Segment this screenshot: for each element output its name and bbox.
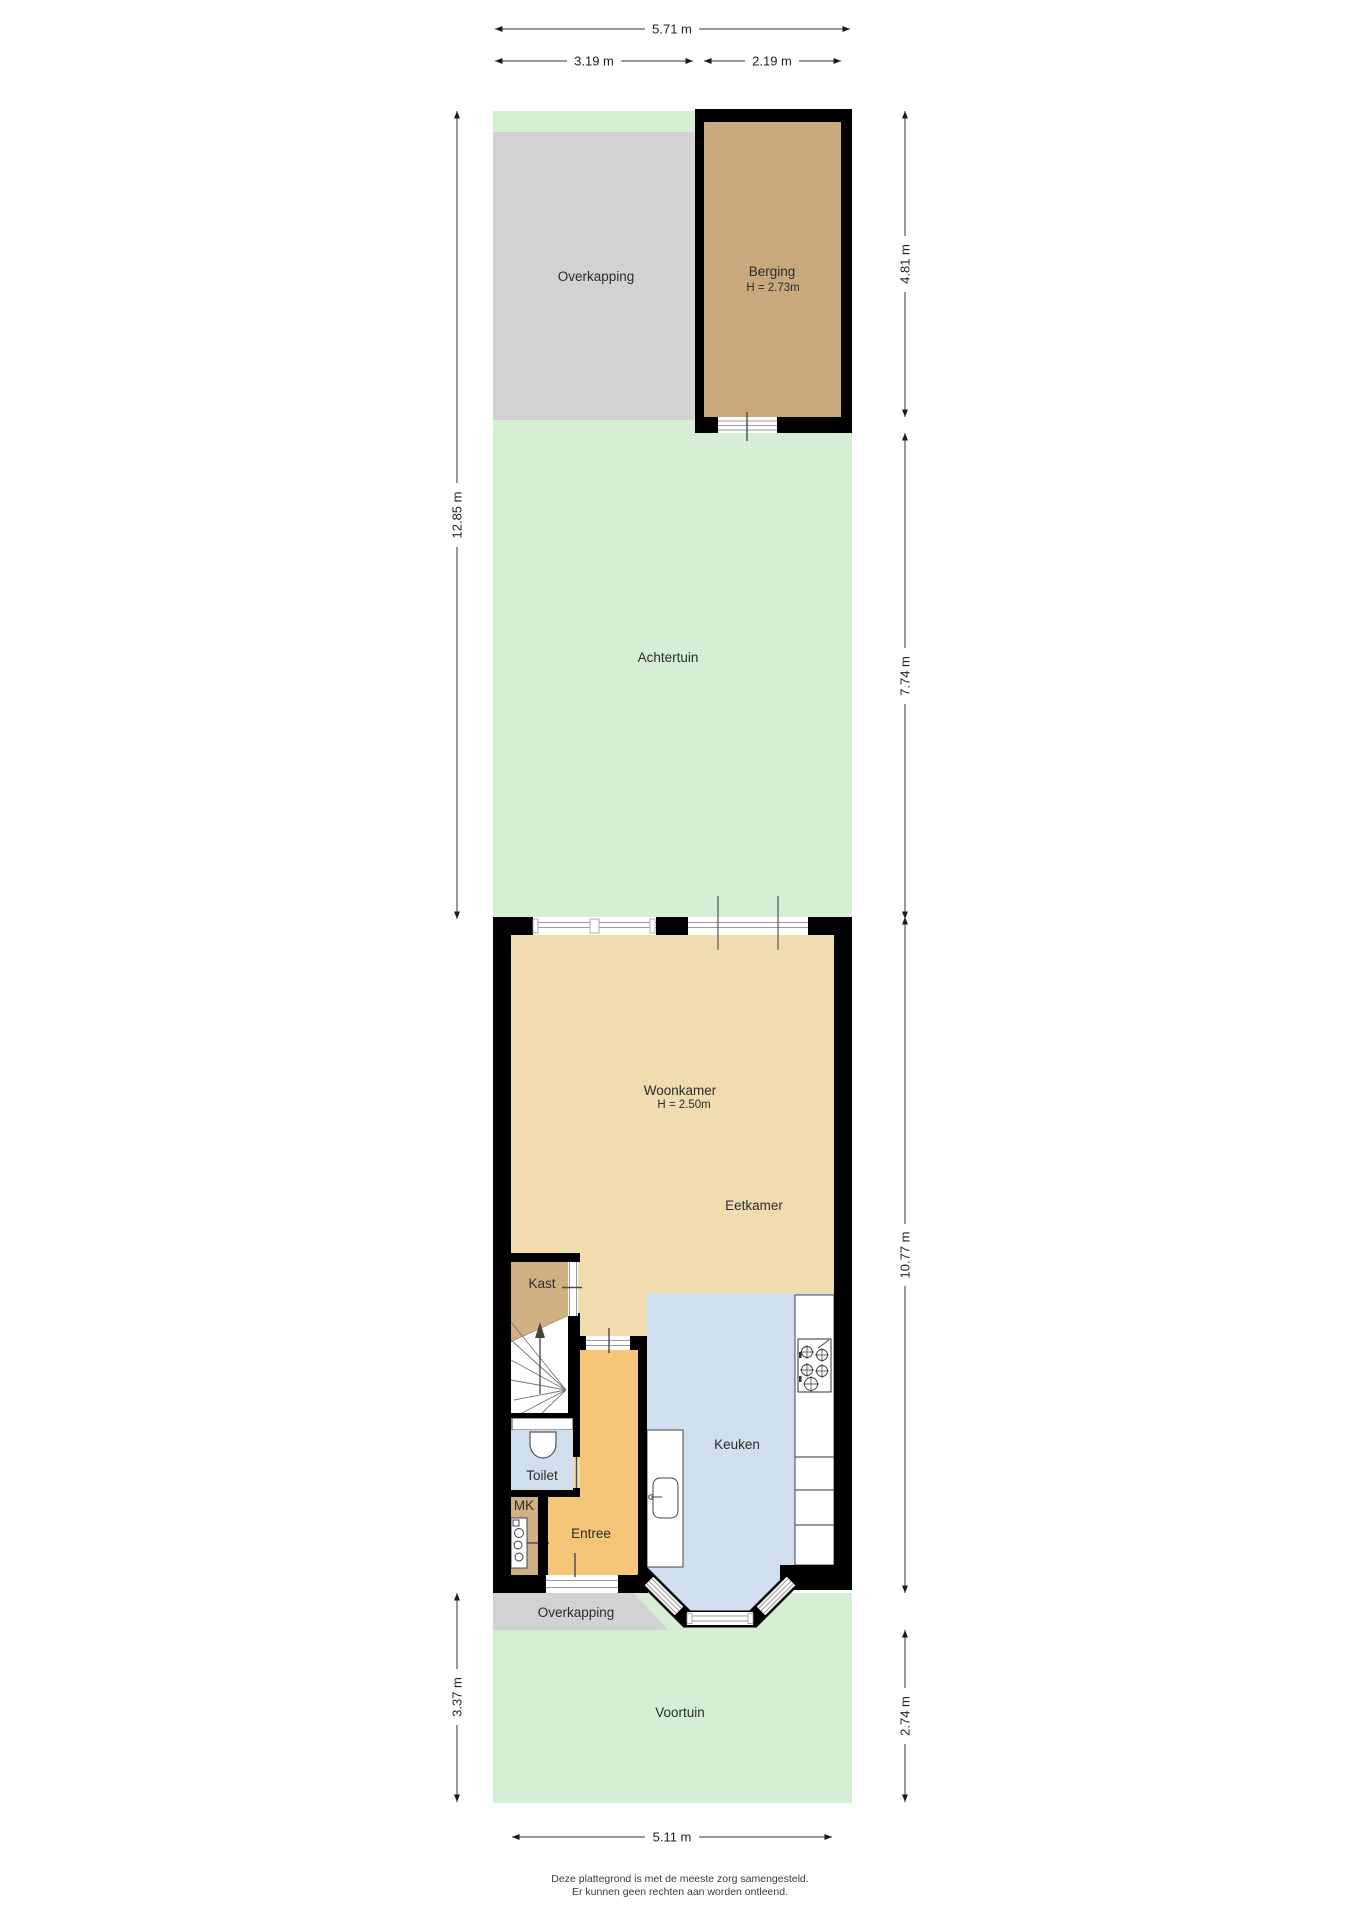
svg-text:3.37 m: 3.37 m xyxy=(450,1677,465,1717)
floorplan-page: Overkapping Berging H = 2.73m Achtertuin… xyxy=(0,0,1358,1920)
footer-disclaimer-line1: Deze plattegrond is met de meeste zorg s… xyxy=(551,1873,808,1885)
berging-height-label: H = 2.73m xyxy=(746,282,799,294)
svg-text:5.11 m: 5.11 m xyxy=(653,1830,692,1845)
svg-text:4.81 m: 4.81 m xyxy=(898,244,913,284)
toilet-label: Toilet xyxy=(526,1468,558,1483)
woonkamer-height-label: H = 2.50m xyxy=(657,1099,710,1111)
kast-label: Kast xyxy=(528,1276,555,1291)
woonkamer-label: Woonkamer xyxy=(644,1083,717,1098)
toilet-cistern xyxy=(512,1418,573,1430)
svg-text:3.19 m: 3.19 m xyxy=(574,54,614,69)
svg-text:5.71 m: 5.71 m xyxy=(652,22,692,37)
overkapping-front-label: Overkapping xyxy=(538,1605,615,1620)
svg-text:12.85 m: 12.85 m xyxy=(450,492,465,539)
entree-label: Entree xyxy=(571,1526,611,1541)
svg-text:7.74 m: 7.74 m xyxy=(898,656,913,696)
mk-label: MK xyxy=(514,1498,534,1513)
kitchen-counter xyxy=(795,1295,834,1565)
sink-icon xyxy=(647,1430,683,1567)
achtertuin-label: Achtertuin xyxy=(638,650,699,665)
svg-text:2.74 m: 2.74 m xyxy=(898,1696,913,1736)
voortuin-label: Voortuin xyxy=(655,1705,705,1720)
keuken-label: Keuken xyxy=(714,1437,760,1452)
svg-text:2.19 m: 2.19 m xyxy=(752,54,792,69)
svg-text:10.77 m: 10.77 m xyxy=(898,1232,913,1279)
stove-icon xyxy=(798,1339,831,1392)
toilet-bowl-icon xyxy=(530,1432,556,1458)
rear-window xyxy=(533,917,656,935)
floorplan-canvas: Overkapping Berging H = 2.73m Achtertuin… xyxy=(0,0,1358,1920)
overkapping-back-label: Overkapping xyxy=(558,269,635,284)
berging-label: Berging xyxy=(749,264,796,279)
eetkamer-label: Eetkamer xyxy=(725,1198,783,1213)
footer-disclaimer-line2: Er kunnen geen rechten aan worden ontlee… xyxy=(572,1886,788,1898)
